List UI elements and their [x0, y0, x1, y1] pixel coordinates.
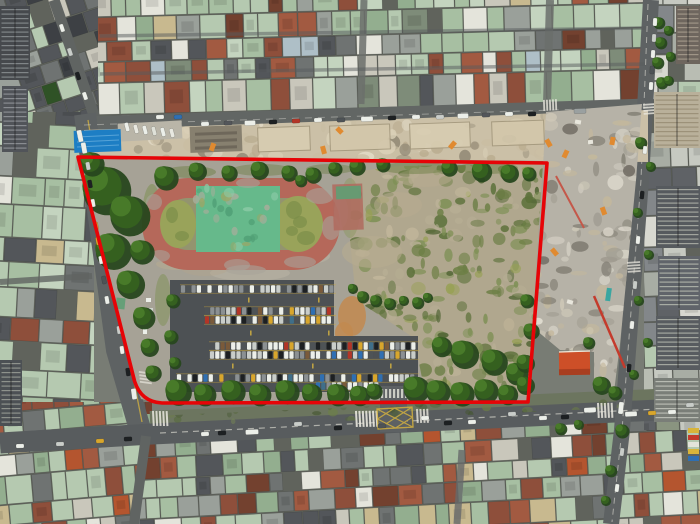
- terrain-patch: [600, 363, 607, 378]
- car: [224, 121, 232, 125]
- roof: [208, 59, 224, 79]
- parked-car: [247, 342, 251, 349]
- roof: [250, 0, 268, 12]
- lane-arrow: [318, 298, 320, 303]
- terrain-patch: [496, 278, 501, 286]
- car: [436, 115, 444, 119]
- parked-car: [274, 342, 278, 349]
- roof: [655, 431, 673, 452]
- roof: [629, 518, 644, 524]
- tree-highlight: [616, 425, 623, 432]
- parked-car: [252, 342, 256, 349]
- roof: [531, 437, 551, 458]
- parked-car: [406, 342, 410, 349]
- parked-car: [298, 285, 302, 292]
- terrain-patch: [422, 337, 433, 348]
- stripe: [385, 389, 387, 398]
- roof: [434, 0, 455, 8]
- infield-patch: [166, 207, 178, 223]
- parked-car: [368, 374, 372, 381]
- parked-car: [305, 351, 309, 358]
- roof-detail: [136, 46, 146, 55]
- tree-highlight: [329, 163, 336, 170]
- parked-car: [364, 342, 368, 349]
- tree-highlight: [517, 377, 526, 386]
- roof: [574, 5, 595, 29]
- stripe: [552, 99, 554, 110]
- tree-highlight: [306, 168, 314, 176]
- infield-patch: [175, 231, 189, 241]
- car: [619, 448, 624, 456]
- terrain-patch: [444, 248, 452, 261]
- parked-car: [295, 307, 299, 314]
- parked-car: [395, 342, 399, 349]
- parked-car: [221, 316, 225, 323]
- roof-detail: [571, 462, 582, 470]
- roof: [364, 446, 384, 467]
- roof: [592, 434, 606, 455]
- terrain-patch: [432, 266, 440, 279]
- roof-detail: [322, 41, 331, 50]
- parked-car: [395, 351, 399, 358]
- terrain-patch: [475, 271, 483, 278]
- roof: [454, 0, 469, 7]
- roof-detail: [247, 43, 258, 52]
- roof: [378, 55, 395, 75]
- car: [269, 120, 277, 124]
- roof: [373, 486, 399, 507]
- tree-highlight: [222, 166, 230, 174]
- roof: [349, 509, 364, 524]
- roof-detail: [191, 0, 203, 6]
- roof: [242, 452, 264, 474]
- running-track: [146, 178, 348, 275]
- infield-patch: [293, 216, 307, 228]
- terrain-patch: [529, 145, 546, 157]
- terrain-patch: [312, 411, 321, 415]
- roof: [303, 511, 319, 524]
- terrain-patch: [401, 235, 405, 241]
- terrain-patch: [599, 275, 610, 285]
- roof-detail: [567, 35, 579, 44]
- roof: [661, 516, 681, 524]
- roof: [22, 410, 45, 432]
- terrain-patch: [251, 235, 255, 242]
- terrain-patch: [615, 273, 623, 279]
- terrain-patch: [593, 212, 602, 226]
- terrain-patch: [510, 264, 521, 274]
- roof: [488, 461, 513, 479]
- tree-highlight: [250, 384, 261, 395]
- terrain-patch: [602, 241, 607, 246]
- terrain-patch: [412, 321, 418, 331]
- terrain-patch: [260, 215, 267, 224]
- roof: [510, 0, 531, 6]
- car: [574, 108, 586, 113]
- roof: [510, 500, 530, 523]
- tree-highlight: [385, 298, 391, 304]
- terrain-patch: [450, 205, 461, 214]
- tree-highlight: [165, 331, 172, 338]
- parked-car: [226, 342, 230, 349]
- car: [337, 118, 345, 122]
- parked-car: [235, 374, 239, 381]
- terrain-patch: [556, 266, 572, 274]
- parked-car: [288, 374, 292, 381]
- roof: [323, 448, 341, 469]
- tree-highlight: [296, 175, 302, 181]
- roof: [421, 34, 442, 53]
- parked-car: [287, 285, 291, 292]
- roof-detail: [346, 453, 358, 463]
- parked-car: [242, 316, 246, 323]
- roof: [397, 76, 419, 107]
- tree-highlight: [134, 307, 145, 318]
- roof: [482, 480, 506, 501]
- terrain-patch: [211, 186, 215, 196]
- foundation: [492, 120, 545, 146]
- roof: [335, 488, 356, 509]
- car: [640, 191, 645, 199]
- terrain-patch: [366, 209, 373, 222]
- roof: [264, 451, 281, 472]
- car: [651, 50, 656, 58]
- roof: [572, 435, 592, 456]
- terrain-patch: [558, 323, 564, 328]
- parked-car: [327, 342, 331, 349]
- roof: [270, 473, 283, 491]
- roof-detail: [407, 15, 421, 26]
- roof: [588, 0, 608, 4]
- roof: [683, 491, 698, 514]
- roof: [595, 4, 620, 28]
- tree-highlight: [657, 77, 663, 83]
- parked-car: [263, 351, 267, 358]
- alley: [361, 0, 364, 104]
- parked-car: [215, 342, 219, 349]
- roof-detail: [164, 462, 173, 472]
- roof: [379, 76, 397, 107]
- roof: [561, 50, 581, 70]
- roof-ridge: [678, 258, 679, 308]
- car: [388, 116, 396, 120]
- parked-car: [316, 316, 320, 323]
- tree-highlight: [521, 295, 528, 302]
- parked-car: [352, 374, 356, 381]
- parked-car: [215, 351, 219, 358]
- terrain-patch: [373, 276, 386, 280]
- parked-car: [251, 374, 255, 381]
- parked-car: [313, 285, 317, 292]
- roof-detail: [112, 47, 126, 56]
- parked-car: [236, 342, 240, 349]
- track-infield: [160, 200, 196, 248]
- stall-line: [204, 306, 336, 307]
- tree-highlight: [634, 296, 639, 301]
- parked-car: [411, 342, 415, 349]
- roof: [13, 205, 43, 238]
- parked-car: [294, 374, 298, 381]
- car: [561, 415, 569, 420]
- structure: [146, 298, 151, 302]
- parked-car: [193, 374, 197, 381]
- apartment-building: [654, 92, 700, 148]
- parked-car: [347, 374, 351, 381]
- car: [505, 112, 513, 116]
- roof-detail: [627, 478, 637, 487]
- lane-arrow: [248, 298, 250, 303]
- parked-car: [229, 285, 233, 292]
- parked-car: [214, 374, 218, 381]
- roof: [0, 316, 11, 340]
- terrain-patch: [551, 194, 558, 204]
- car: [457, 113, 468, 118]
- terrain-patch: [455, 218, 463, 224]
- stall-line: [176, 373, 419, 374]
- parked-car: [316, 342, 320, 349]
- car: [482, 113, 490, 117]
- roof: [672, 167, 697, 188]
- tree-highlight: [584, 337, 590, 343]
- signboard: [688, 428, 699, 433]
- foundation: [258, 126, 311, 152]
- parked-car: [342, 342, 346, 349]
- roof: [144, 82, 164, 113]
- parked-car: [205, 316, 209, 323]
- tree-highlight: [593, 377, 602, 386]
- terrain-patch: [382, 269, 388, 276]
- parked-car: [321, 382, 325, 389]
- parked-car: [237, 307, 241, 314]
- terrain-patch: [264, 205, 270, 211]
- roof: [182, 517, 201, 524]
- roof: [216, 515, 236, 524]
- tree-highlight: [146, 366, 154, 374]
- infield-patch: [286, 226, 298, 236]
- roof-detail: [637, 499, 645, 509]
- tree-highlight: [111, 196, 131, 216]
- car: [686, 403, 694, 408]
- apartment-building: [658, 256, 700, 310]
- parked-car: [329, 285, 333, 292]
- terrain-patch: [224, 188, 235, 198]
- roof: [220, 494, 237, 514]
- roof: [16, 453, 34, 474]
- roof: [504, 7, 530, 31]
- structure: [588, 140, 593, 144]
- terrain-patch: [230, 242, 236, 251]
- tree-highlight: [348, 284, 353, 289]
- roof: [246, 79, 270, 110]
- terrain-patch: [425, 215, 435, 224]
- terrain-patch: [244, 136, 258, 143]
- roof-detail: [214, 0, 227, 5]
- parked-car: [284, 307, 288, 314]
- stall-line: [180, 293, 336, 294]
- roof-detail: [470, 446, 485, 456]
- roof: [463, 32, 488, 51]
- parked-car: [390, 342, 394, 349]
- parked-car: [300, 342, 304, 349]
- roof: [688, 0, 700, 4]
- roof-detail: [19, 184, 37, 197]
- roof: [663, 471, 686, 492]
- parked-car: [322, 307, 326, 314]
- parked-car: [401, 342, 405, 349]
- roof-detail: [690, 475, 700, 484]
- roof: [442, 8, 463, 32]
- parked-car: [258, 316, 262, 323]
- apartment-building: [676, 6, 700, 64]
- lane-arrow: [232, 364, 234, 369]
- roof: [92, 496, 114, 517]
- roof: [9, 503, 33, 524]
- car: [618, 402, 624, 414]
- parked-car: [186, 285, 190, 292]
- roof-detail: [295, 86, 308, 100]
- parked-car: [327, 351, 331, 358]
- terrain-patch: [560, 298, 564, 310]
- parked-car: [221, 342, 225, 349]
- car: [201, 432, 209, 437]
- terrain-patch: [388, 310, 397, 321]
- roof-detail: [246, 20, 254, 31]
- terrain-patch: [447, 230, 453, 236]
- roof: [338, 0, 357, 10]
- apartment-building: [656, 186, 700, 248]
- terrain-patch: [249, 219, 255, 225]
- tree-highlight: [656, 37, 662, 43]
- roof: [157, 479, 183, 497]
- tree-highlight: [664, 76, 669, 81]
- parked-car: [260, 285, 264, 292]
- roof: [82, 448, 99, 469]
- roof-ridge: [10, 362, 11, 424]
- terrain-patch: [618, 226, 632, 231]
- tree-highlight: [664, 26, 669, 31]
- roof: [558, 0, 572, 4]
- parked-car: [263, 342, 267, 349]
- parked-car: [223, 285, 227, 292]
- roof: [513, 460, 528, 478]
- parked-car: [348, 351, 352, 358]
- parked-car: [247, 351, 251, 358]
- car: [156, 115, 164, 119]
- parked-car: [274, 351, 278, 358]
- parked-car: [253, 307, 257, 314]
- roof: [436, 504, 449, 524]
- tree-highlight: [166, 380, 179, 393]
- roof: [488, 501, 510, 524]
- parked-car: [353, 351, 357, 358]
- car: [539, 416, 547, 421]
- roof: [586, 29, 601, 48]
- roof-detail: [227, 88, 240, 102]
- parked-car: [279, 342, 283, 349]
- terrain-patch: [213, 214, 219, 223]
- roof: [190, 81, 206, 112]
- roof-detail: [36, 507, 47, 516]
- car: [584, 407, 596, 413]
- roof: [442, 33, 463, 52]
- terrain-patch: [321, 123, 326, 132]
- terrain-patch: [474, 248, 479, 254]
- apartment-building: [0, 6, 30, 80]
- parked-car: [263, 316, 267, 323]
- apartment-building: [0, 360, 22, 426]
- stripe: [389, 389, 391, 398]
- car: [668, 410, 676, 415]
- roof: [474, 74, 489, 105]
- parked-car: [299, 374, 303, 381]
- roof-detail: [322, 516, 331, 524]
- parked-car: [394, 374, 398, 381]
- apartment-building: [654, 378, 700, 422]
- parked-car: [284, 342, 288, 349]
- roof: [47, 372, 81, 399]
- stall-line: [204, 315, 336, 316]
- roof-detail: [530, 80, 541, 94]
- ground-patch: [380, 162, 450, 174]
- parked-car: [309, 374, 313, 381]
- roof: [663, 0, 686, 4]
- roof: [51, 500, 73, 521]
- roof: [424, 443, 442, 464]
- aerial-photo: [0, 0, 700, 524]
- terrain-patch: [174, 416, 182, 423]
- tree-highlight: [371, 295, 377, 301]
- roof-detail: [281, 496, 290, 505]
- roof-detail: [565, 481, 576, 490]
- roof: [66, 345, 90, 373]
- roof: [73, 498, 93, 519]
- roof: [49, 451, 66, 472]
- terrain-patch: [550, 279, 558, 291]
- tree-highlight: [633, 208, 638, 213]
- lane-arrow: [390, 364, 392, 369]
- roof: [189, 40, 206, 59]
- terrain-patch: [457, 301, 467, 311]
- terrain-patch: [563, 170, 577, 176]
- roof-detail: [320, 18, 328, 29]
- tree-highlight: [303, 384, 313, 394]
- parked-car: [380, 342, 384, 349]
- terrain-patch: [463, 328, 474, 338]
- car: [245, 429, 258, 435]
- parked-car: [279, 316, 283, 323]
- parked-car: [207, 285, 211, 292]
- parked-car: [250, 285, 254, 292]
- car: [633, 281, 638, 289]
- terrain-patch: [606, 248, 624, 261]
- terrain-patch: [436, 309, 441, 322]
- roof: [151, 61, 165, 81]
- parked-car: [289, 342, 293, 349]
- parked-car: [306, 316, 310, 323]
- parked-car: [272, 374, 276, 381]
- track-wear: [146, 194, 162, 210]
- terrain-patch: [603, 196, 612, 207]
- roof-ridge: [677, 188, 678, 246]
- roof-detail: [125, 91, 138, 105]
- terrain-patch: [504, 318, 515, 331]
- roof-detail: [336, 17, 346, 28]
- parked-car: [242, 351, 246, 358]
- roof-detail: [69, 187, 80, 199]
- terrain-patch: [473, 198, 478, 211]
- parked-car: [210, 351, 214, 358]
- parked-car: [325, 374, 329, 381]
